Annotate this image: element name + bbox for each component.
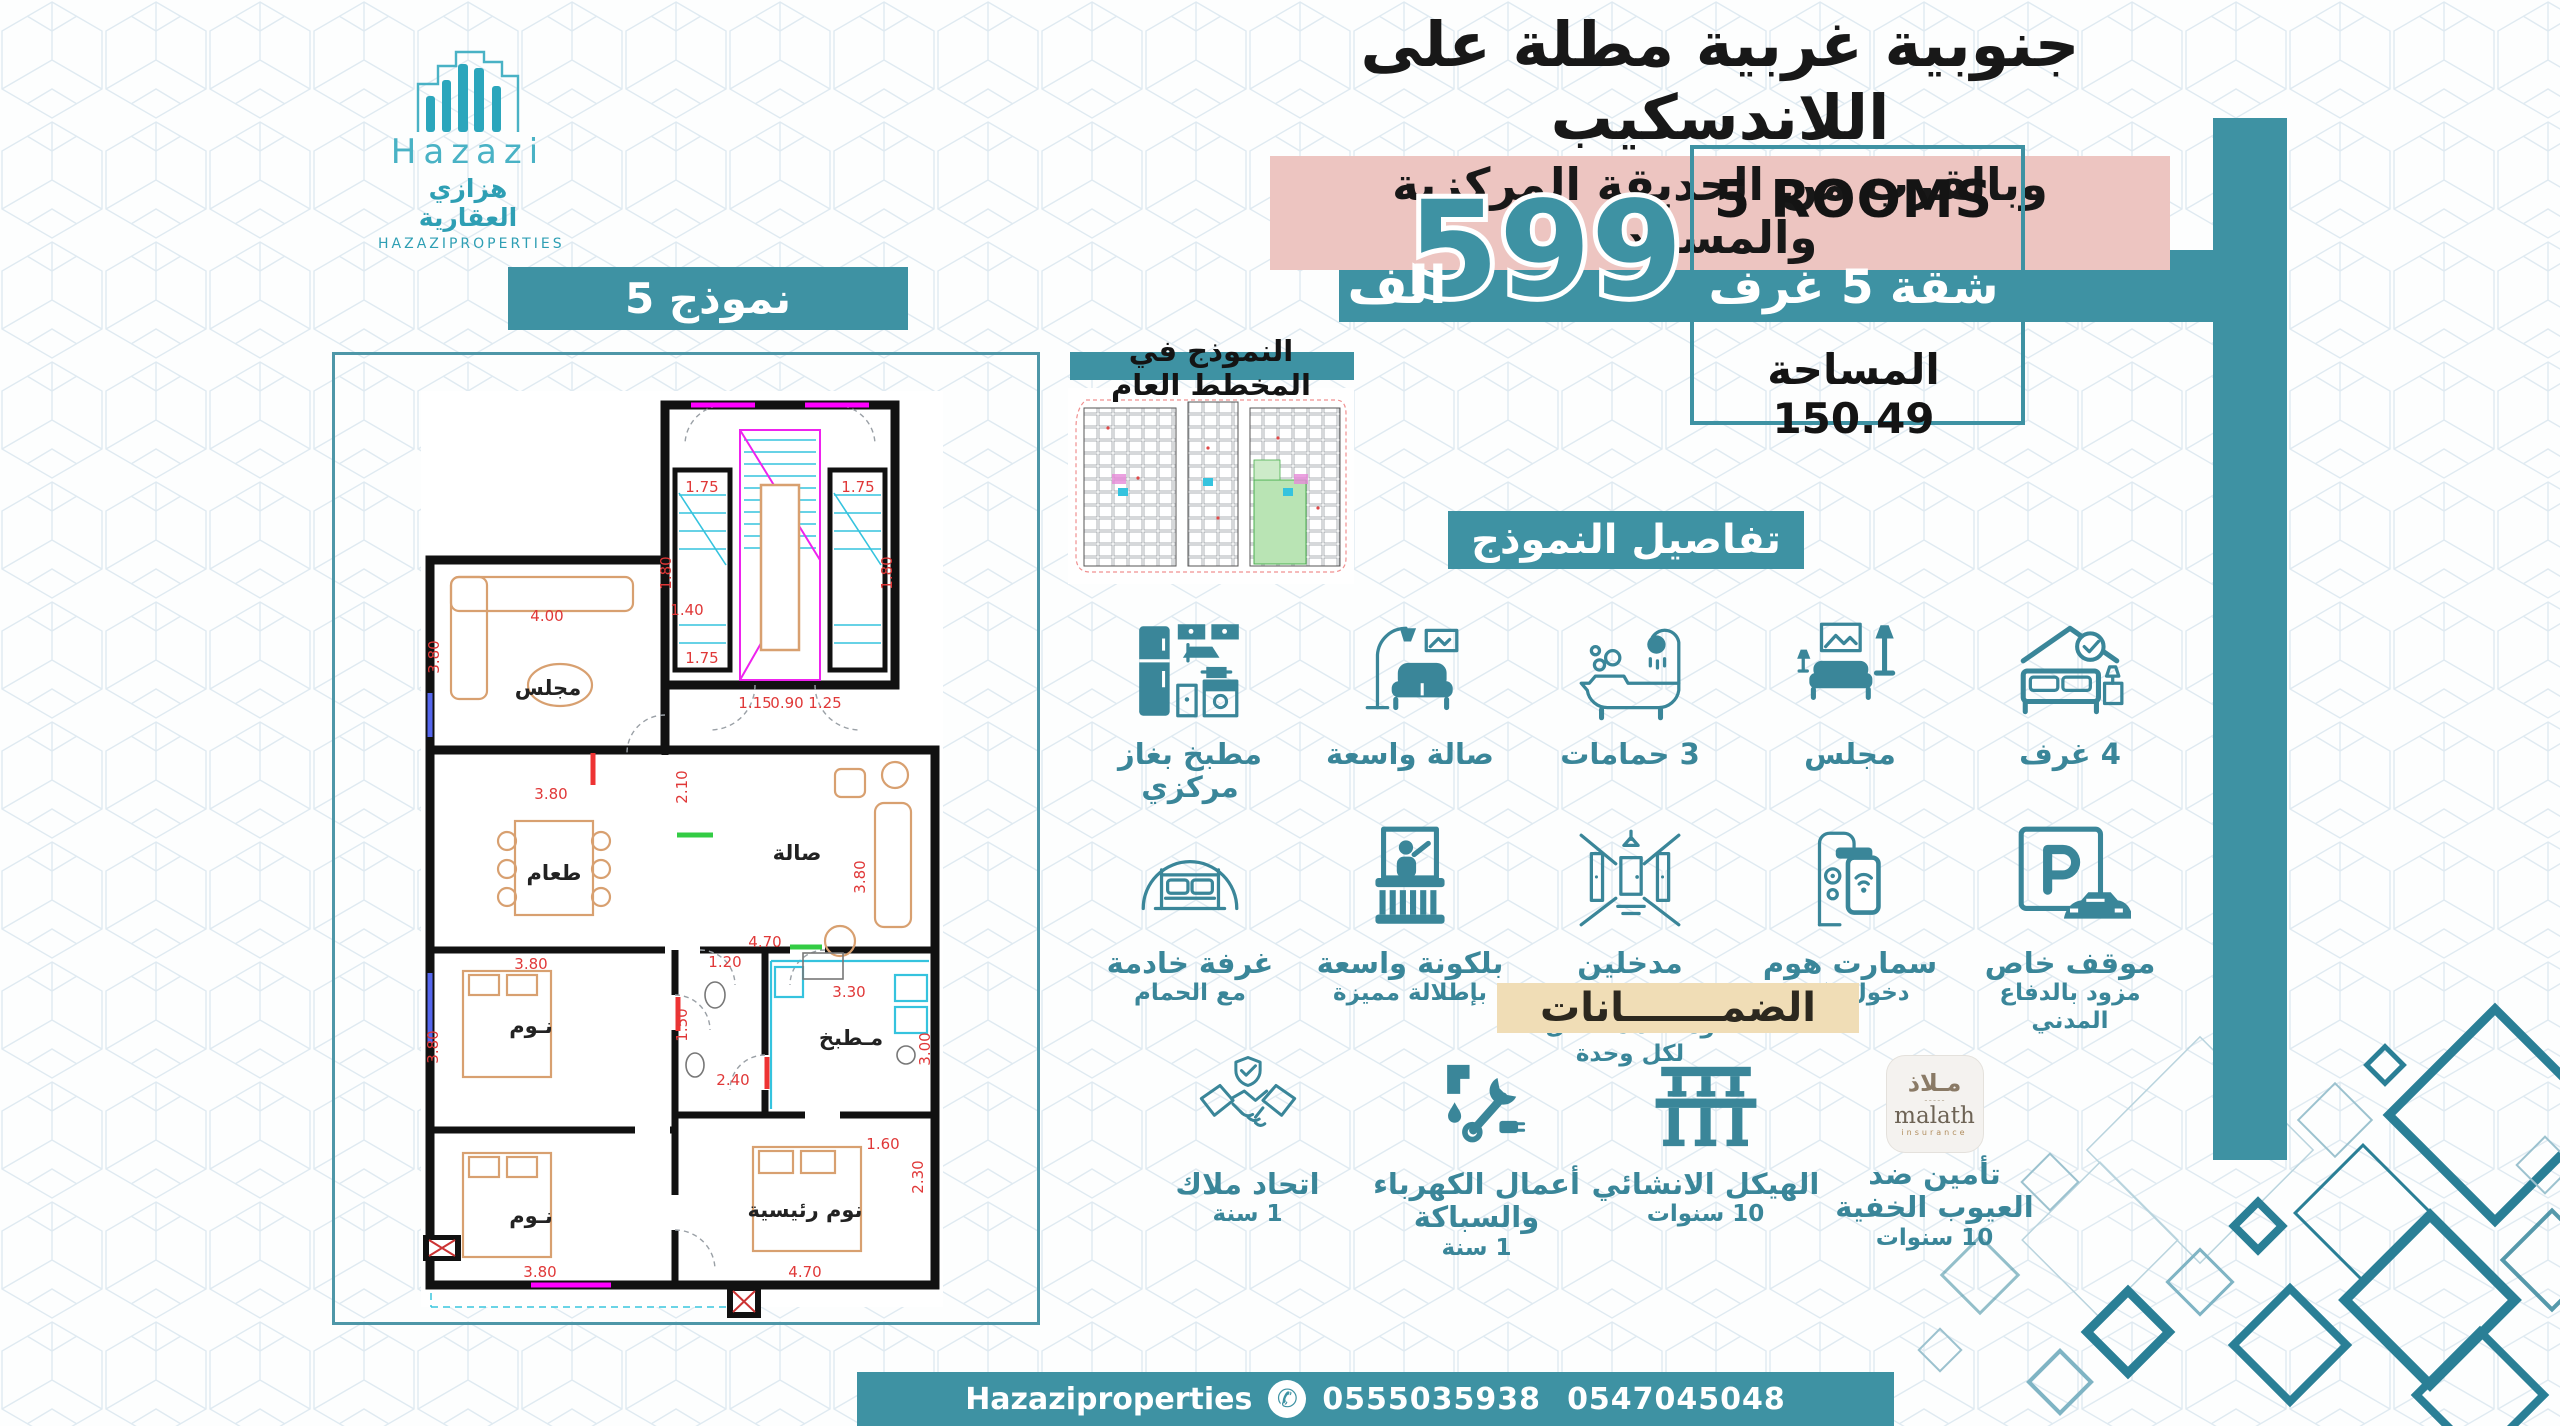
brand-name-ar: هزازي العقارية (378, 174, 558, 232)
guarantees-grid: مـلاذ ـ ـ ـ ـ ـ malath insurance تأمين ض… (1133, 1050, 2049, 1262)
svg-text:3.00: 3.00 (916, 1032, 934, 1065)
svg-text:طعام: طعام (527, 861, 582, 885)
brand-name-en: Hazazi (378, 132, 558, 172)
phone-number-1: 0555035938 (1322, 1382, 1541, 1417)
brand-name-caps: HAZAZIPROPERTIES (378, 236, 558, 252)
svg-text:2.40: 2.40 (716, 1071, 749, 1089)
malath-logo: مـلاذ ـ ـ ـ ـ ـ malath insurance (1887, 1056, 1983, 1152)
feature-bathrooms: 3 حمامات (1520, 610, 1740, 805)
hallway-icon (1569, 819, 1691, 941)
rooms-count-ar: شقة 5 غرف (1690, 252, 2017, 322)
svg-text:3.80: 3.80 (534, 785, 567, 803)
handshake-icon (1192, 1050, 1304, 1162)
feature-maid-room: غرفة خادمة مع الحمام (1080, 819, 1300, 1069)
feature-hall: صالة واسعة (1300, 610, 1520, 805)
svg-text:3.80: 3.80 (851, 860, 869, 893)
feature-kitchen: مطبخ بغاز مركزي (1080, 610, 1300, 805)
floor-plan-box: مجلس طعام صالة نـوم مـطبخ نـوم نوم رئيسي… (332, 352, 1040, 1325)
guarantee-mep: أعمال الكهرباء والسباكة 1 سنة (1362, 1050, 1591, 1262)
svg-text:1.80: 1.80 (878, 556, 896, 589)
svg-text:4.00: 4.00 (530, 607, 563, 625)
details-heading: تفاصيل النموذج (1448, 511, 1804, 569)
structure-icon (1650, 1050, 1762, 1162)
footer-brand: Hazaziproperties (965, 1382, 1252, 1417)
svg-text:1.25: 1.25 (808, 694, 841, 712)
siteplan-caption: النموذج في المخطط العام (1064, 334, 1358, 402)
svg-text:2.10: 2.10 (673, 770, 691, 803)
kitchen-icon (1129, 610, 1251, 732)
model-badge: نموذج 5 (508, 267, 908, 330)
svg-text:مـطبخ: مـطبخ (819, 1026, 883, 1050)
svg-text:4.70: 4.70 (788, 1263, 821, 1281)
side-accent-bar (2213, 118, 2287, 1160)
svg-text:0.90: 0.90 (770, 694, 803, 712)
guarantee-insurance: مـلاذ ـ ـ ـ ـ ـ malath insurance تأمين ض… (1820, 1050, 2049, 1262)
phone-icon: ✆ (1268, 1380, 1306, 1418)
floor-plan-drawing: مجلس طعام صالة نـوم مـطبخ نـوم نوم رئيسي… (335, 355, 1037, 1322)
svg-text:3.80: 3.80 (523, 1263, 556, 1281)
guarantees-heading: الضمـــــــانات (1497, 983, 1859, 1033)
majlis-sofa-icon (1789, 610, 1911, 732)
smart-lock-icon (1789, 819, 1911, 941)
svg-text:3.80: 3.80 (514, 955, 547, 973)
footer-bar: Hazaziproperties ✆ 0555035938 0547045048 (857, 1372, 1894, 1426)
feature-4-rooms: 4 غرف (1960, 610, 2180, 805)
buildings-icon (393, 42, 543, 134)
siteplan-drawing (1068, 388, 1354, 584)
svg-text:1.50: 1.50 (673, 1008, 691, 1041)
parking-icon (2009, 819, 2131, 941)
svg-text:3.80: 3.80 (425, 640, 443, 673)
svg-text:صالة: صالة (773, 841, 822, 865)
guarantee-structure: الهيكل الانشائي 10 سنوات (1591, 1050, 1820, 1262)
area-value: المساحة 150.49 (1690, 345, 2017, 443)
svg-text:1.75: 1.75 (685, 649, 718, 667)
svg-text:1.20: 1.20 (708, 953, 741, 971)
flyer-root: { "brand": {"en": "Hazazi", "ar": "هزازي… (0, 0, 2560, 1426)
svg-text:نـوم: نـوم (509, 1014, 553, 1038)
price-unit: الف (1339, 252, 1455, 320)
phone-number-2: 0547045048 (1567, 1382, 1786, 1417)
svg-text:1.75: 1.75 (841, 478, 874, 496)
feature-majlis: مجلس (1740, 610, 1960, 805)
maid-room-icon (1129, 819, 1251, 941)
svg-text:1.15: 1.15 (738, 694, 771, 712)
svg-text:3.30: 3.30 (832, 983, 865, 1001)
headline-line1: جنوبية غربية مطلة على اللاندسكيب (1270, 8, 2170, 154)
svg-text:4.70: 4.70 (748, 933, 781, 951)
guarantee-owners-union: اتحاد ملاك 1 سنة (1133, 1050, 1362, 1262)
svg-text:مجلس: مجلس (515, 676, 581, 700)
tools-icon (1421, 1050, 1533, 1162)
svg-text:2.30: 2.30 (909, 1160, 927, 1193)
svg-text:3.80: 3.80 (424, 1030, 442, 1063)
balcony-icon (1349, 819, 1471, 941)
bed-check-icon (2009, 610, 2131, 732)
svg-text:1.60: 1.60 (866, 1135, 899, 1153)
rooms-count-en: 5 ROOMS (1690, 170, 2017, 230)
svg-text:1.75: 1.75 (685, 478, 718, 496)
svg-text:نوم رئيسية: نوم رئيسية (748, 1198, 863, 1222)
svg-text:1.40: 1.40 (670, 601, 703, 619)
svg-text:نـوم: نـوم (509, 1204, 553, 1228)
svg-text:1.80: 1.80 (657, 556, 675, 589)
feature-balcony: بلكونة واسعة بإطلالة مميزة (1300, 819, 1520, 1069)
bathtub-icon (1569, 610, 1691, 732)
feature-parking: موقف خاص مزود بالدفاع المدني (1960, 819, 2180, 1069)
armchair-lamp-icon (1349, 610, 1471, 732)
brand-logo: Hazazi هزازي العقارية HAZAZIPROPERTIES (378, 42, 558, 252)
